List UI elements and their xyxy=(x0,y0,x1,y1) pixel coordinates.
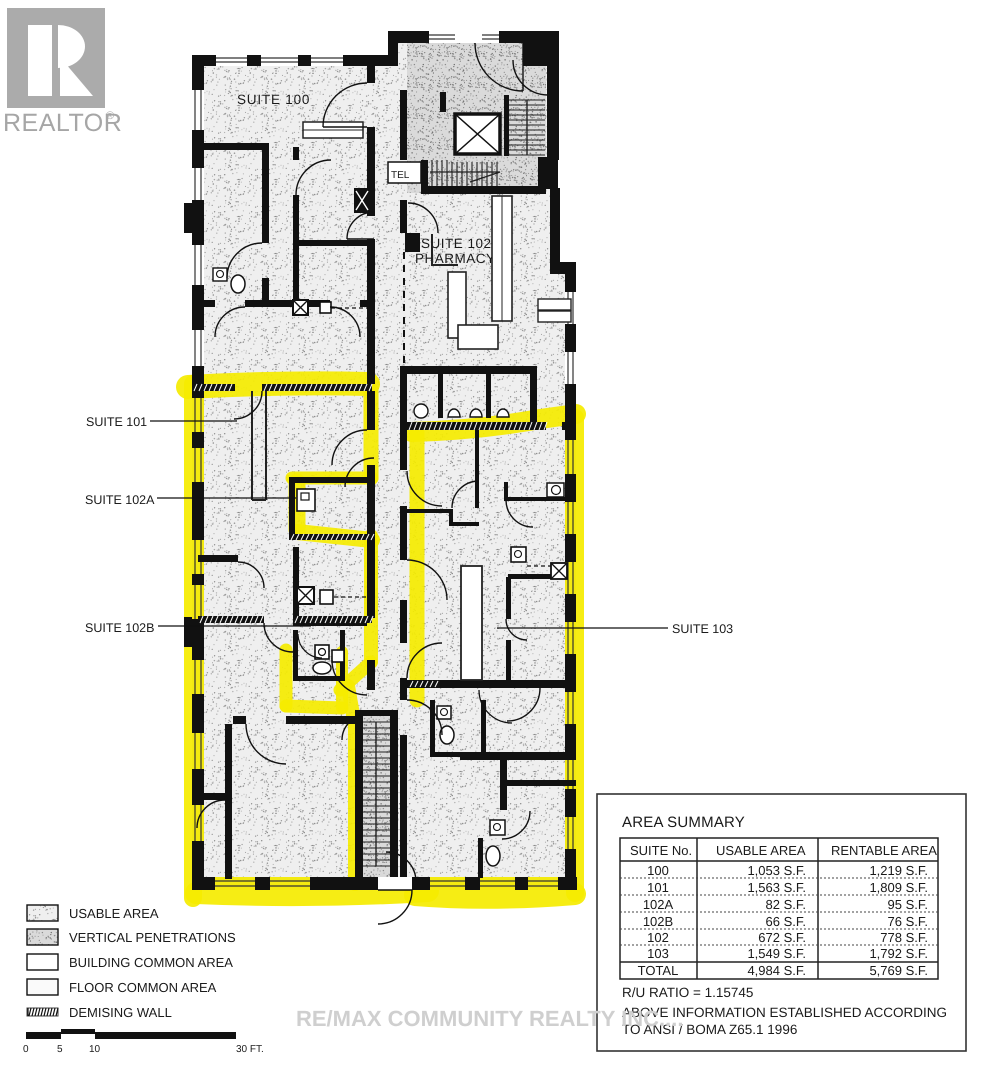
svg-text:SUITE 101: SUITE 101 xyxy=(86,415,147,429)
svg-text:672 S.F.: 672 S.F. xyxy=(758,930,806,945)
svg-text:4,984 S.F.: 4,984 S.F. xyxy=(747,963,806,978)
svg-text:1,792 S.F.: 1,792 S.F. xyxy=(869,946,928,961)
svg-text:TOTAL: TOTAL xyxy=(638,963,679,978)
svg-text:SUITE 103: SUITE 103 xyxy=(672,622,733,636)
svg-text:®: ® xyxy=(106,110,114,122)
svg-text:REALTOR: REALTOR xyxy=(3,109,122,137)
svg-text:101: 101 xyxy=(647,880,669,895)
svg-text:10: 10 xyxy=(89,1044,101,1055)
svg-text:76 S.F.: 76 S.F. xyxy=(888,914,928,929)
svg-text:1,053 S.F.: 1,053 S.F. xyxy=(747,863,806,878)
svg-text:TEL: TEL xyxy=(391,170,410,181)
svg-text:RE/MAX COMMUNITY REALTY INC...: RE/MAX COMMUNITY REALTY INC.... xyxy=(296,1006,683,1031)
svg-text:AREA SUMMARY: AREA SUMMARY xyxy=(622,814,745,831)
svg-text:0: 0 xyxy=(23,1044,29,1055)
svg-text:102: 102 xyxy=(647,930,669,945)
svg-text:5: 5 xyxy=(57,1044,63,1055)
svg-text:SUITE 102A: SUITE 102A xyxy=(85,493,155,507)
svg-text:USABLE AREA: USABLE AREA xyxy=(716,843,806,858)
svg-text:100: 100 xyxy=(647,863,669,878)
svg-text:1,809 S.F.: 1,809 S.F. xyxy=(869,880,928,895)
svg-text:RENTABLE AREA: RENTABLE AREA xyxy=(831,843,937,858)
svg-text:778 S.F.: 778 S.F. xyxy=(880,930,928,945)
svg-text:BUILDING COMMON AREA: BUILDING COMMON AREA xyxy=(69,955,233,970)
svg-text:SUITE 100: SUITE 100 xyxy=(237,92,310,107)
svg-text:66 S.F.: 66 S.F. xyxy=(766,914,806,929)
svg-text:SUITE No.: SUITE No. xyxy=(630,843,692,858)
svg-text:5,769 S.F.: 5,769 S.F. xyxy=(869,963,928,978)
svg-text:1,563 S.F.: 1,563 S.F. xyxy=(747,880,806,895)
svg-text:102B: 102B xyxy=(643,914,673,929)
svg-text:USABLE AREA: USABLE AREA xyxy=(69,906,159,921)
svg-text:95 S.F.: 95 S.F. xyxy=(888,897,928,912)
svg-text:102A: 102A xyxy=(643,897,674,912)
svg-text:DEMISING WALL: DEMISING WALL xyxy=(69,1005,172,1020)
svg-text:VERTICAL PENETRATIONS: VERTICAL PENETRATIONS xyxy=(69,930,236,945)
svg-text:82 S.F.: 82 S.F. xyxy=(766,897,806,912)
svg-text:SUITE 102B: SUITE 102B xyxy=(85,621,154,635)
svg-text:PHARMACY: PHARMACY xyxy=(415,251,496,266)
svg-text:1,549 S.F.: 1,549 S.F. xyxy=(747,946,806,961)
svg-text:FLOOR COMMON AREA: FLOOR COMMON AREA xyxy=(69,980,217,995)
svg-text:R/U RATIO = 1.15745: R/U RATIO = 1.15745 xyxy=(622,985,753,1000)
svg-text:103: 103 xyxy=(647,946,669,961)
svg-text:1,219 S.F.: 1,219 S.F. xyxy=(869,863,928,878)
svg-text:30 FT.: 30 FT. xyxy=(236,1044,264,1055)
